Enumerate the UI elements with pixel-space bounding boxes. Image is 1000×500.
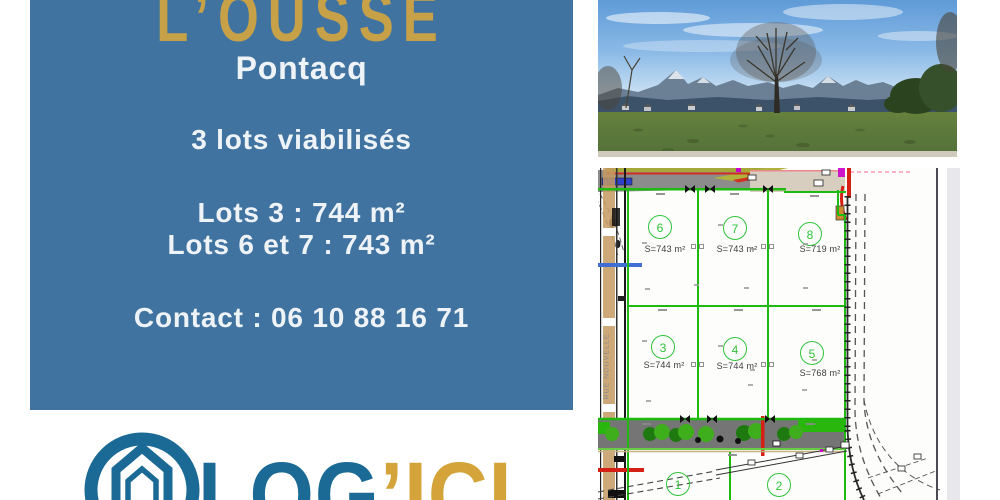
boundary-tick-square <box>699 362 704 367</box>
logici-wordmark: LOG’ICI <box>198 449 513 500</box>
lot-area-label: S=768 m² <box>800 368 841 378</box>
tiny-annotation-mark <box>812 359 817 361</box>
dimension-mark <box>656 193 665 195</box>
tiny-annotation-mark <box>645 288 650 290</box>
lot-number-marker: 5 <box>800 341 824 365</box>
lot-size-line-2: Lots 6 et 7 : 743 m² <box>30 229 573 261</box>
landscape-photo <box>598 0 957 157</box>
dimension-mark <box>642 423 651 425</box>
dimension-mark <box>734 309 743 311</box>
boundary-tick-square <box>769 244 774 249</box>
tiny-annotation-mark <box>748 384 753 386</box>
logici-house-icon <box>80 428 204 500</box>
lot-number-marker: 6 <box>648 215 672 239</box>
tiny-annotation-mark <box>750 369 755 371</box>
lot-area-label: S=743 m² <box>645 244 686 254</box>
logo-text-gold: ’ICI <box>380 444 512 500</box>
boundary-tick-square <box>691 244 696 249</box>
lot-number-marker: 8 <box>798 222 822 246</box>
dimension-mark <box>658 309 667 311</box>
site-plan: RUE NOUVELLE 6S=743 m²7S=743 m²8S=719 m²… <box>598 168 960 500</box>
info-panel: L’OUSSE Pontacq 3 lots viabilisés Lots 3… <box>30 0 573 410</box>
flyer-root: L’OUSSE Pontacq 3 lots viabilisés Lots 3… <box>0 0 1000 500</box>
tiny-annotation-mark <box>718 224 723 226</box>
tiny-annotation-mark <box>803 287 808 289</box>
street-name-label: RUE NOUVELLE <box>604 332 611 402</box>
lot-number-marker: 7 <box>723 216 747 240</box>
field <box>598 112 957 157</box>
dimension-mark <box>730 193 739 195</box>
tiny-annotation-mark <box>750 248 755 250</box>
lot-number-marker: 1 <box>666 472 690 496</box>
tiny-annotation-mark <box>642 242 647 244</box>
dimension-mark <box>812 309 821 311</box>
logo-text-blue: LOG <box>198 444 380 500</box>
tiny-annotation-mark <box>803 243 808 245</box>
lot-area-label: S=744 m² <box>644 360 685 370</box>
boundary-tick-square <box>691 362 696 367</box>
boundary-tick-square <box>769 362 774 367</box>
dimension-mark <box>728 454 737 456</box>
city-name: Pontacq <box>30 50 573 87</box>
lot-area-label: S=719 m² <box>800 244 841 254</box>
tiny-annotation-mark <box>694 284 699 286</box>
lot-number-marker: 4 <box>723 337 747 361</box>
boundary-tick-square <box>761 362 766 367</box>
program-title: L’OUSSE <box>98 0 505 52</box>
tiny-annotation-mark <box>718 345 723 347</box>
tiny-annotation-mark <box>646 400 651 402</box>
availability-text: 3 lots viabilisés <box>30 124 573 156</box>
dimension-mark <box>806 423 815 425</box>
contact-phone: Contact : 06 10 88 16 71 <box>30 302 573 334</box>
dimension-mark <box>810 195 819 197</box>
boundary-tick-square <box>699 244 704 249</box>
lot-size-line-1: Lots 3 : 744 m² <box>30 197 573 229</box>
boundary-tick-square <box>761 244 766 249</box>
tiny-annotation-mark <box>802 389 807 391</box>
page-edge <box>936 168 960 500</box>
lot-number-marker: 2 <box>767 473 791 497</box>
tiny-annotation-mark <box>642 340 647 342</box>
lot-number-marker: 3 <box>651 335 675 359</box>
tiny-annotation-mark <box>744 287 749 289</box>
